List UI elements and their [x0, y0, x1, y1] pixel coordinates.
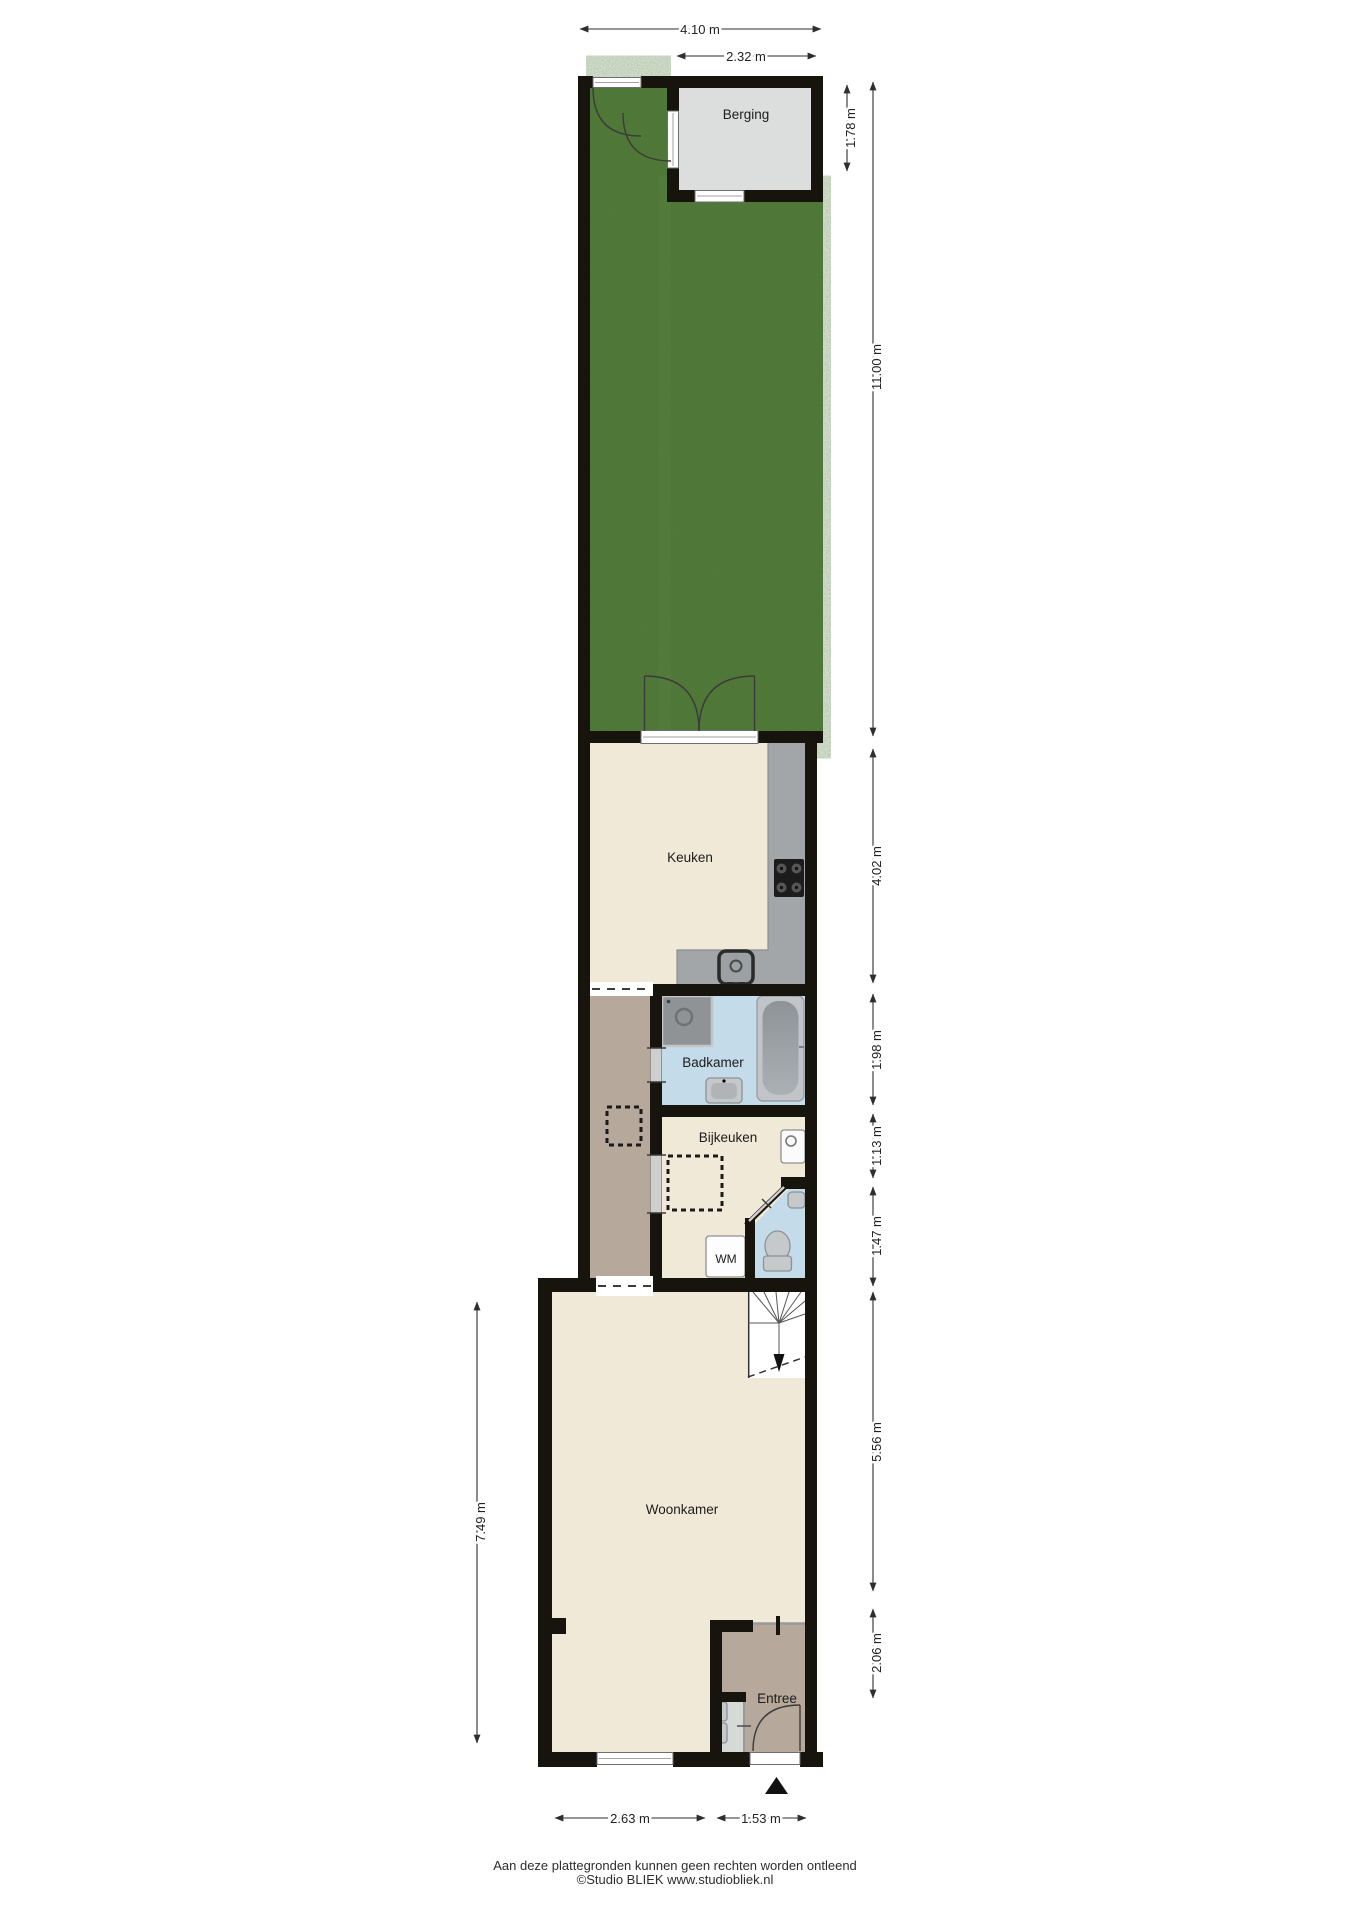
dim-keuken-depth: 4.02 m — [869, 846, 884, 886]
dim-woonkamer-depth: 5.56 m — [869, 1422, 884, 1462]
dim-top-total: 4.10 m — [680, 22, 720, 37]
north-arrow-icon — [765, 1777, 788, 1794]
garden-gate — [593, 78, 641, 88]
footer: Aan deze plattegronden kunnen geen recht… — [493, 1858, 857, 1887]
berging-window — [695, 191, 744, 203]
dim-garden-depth: 11.00 m — [869, 344, 884, 390]
room-label-bijkeuken: Bijkeuken — [699, 1130, 758, 1145]
room-label-berging: Berging — [723, 107, 770, 122]
dim-woonkamer-width: 2.63 m — [610, 1811, 650, 1826]
stairwell-floor — [748, 1292, 805, 1378]
front-door-threshold — [750, 1753, 800, 1765]
footer-disclaimer: Aan deze plattegronden kunnen geen recht… — [493, 1858, 857, 1873]
shower — [662, 996, 712, 1046]
dim-berging-depth: 1.78 m — [843, 108, 858, 148]
room-label-wm: WM — [715, 1252, 736, 1266]
washbasin — [706, 1078, 742, 1103]
floorplan-page: 4.10 m 2.32 m 1.78 m 11.00 m 4.02 m 1.98… — [0, 0, 1350, 1909]
dim-entree-width: 1.53 m — [741, 1811, 781, 1826]
berging-side-door — [668, 111, 679, 168]
dim-entree-depth: 2.06 m — [869, 1633, 884, 1673]
fountain-sink — [788, 1192, 805, 1208]
kitchen-sink — [719, 951, 753, 987]
room-label-woonkamer: Woonkamer — [646, 1502, 719, 1517]
dim-hal-depth: 1.47 m — [869, 1216, 884, 1256]
dim-badkamer-depth: 1.98 m — [869, 1030, 884, 1070]
hob-icon — [774, 859, 804, 897]
toilet — [764, 1231, 792, 1271]
berging-floor — [679, 88, 811, 190]
dim-berging-width: 2.32 m — [726, 49, 766, 64]
room-label-entree: Entree — [757, 1691, 797, 1706]
boiler — [781, 1130, 805, 1163]
floorplan-drawing: 4.10 m 2.32 m 1.78 m 11.00 m 4.02 m 1.98… — [0, 0, 1350, 1909]
room-label-badkamer: Badkamer — [682, 1055, 744, 1070]
dim-left-total: 7.49 m — [473, 1502, 488, 1542]
room-label-keuken: Keuken — [667, 850, 713, 865]
dim-bijkeuken-depth: 1.13 m — [869, 1126, 884, 1166]
french-doors-frame — [641, 731, 758, 744]
woonkamer-window — [597, 1753, 673, 1765]
footer-credit: ©Studio BLIEK www.studiobliek.nl — [577, 1872, 774, 1887]
bathtub — [757, 996, 804, 1101]
